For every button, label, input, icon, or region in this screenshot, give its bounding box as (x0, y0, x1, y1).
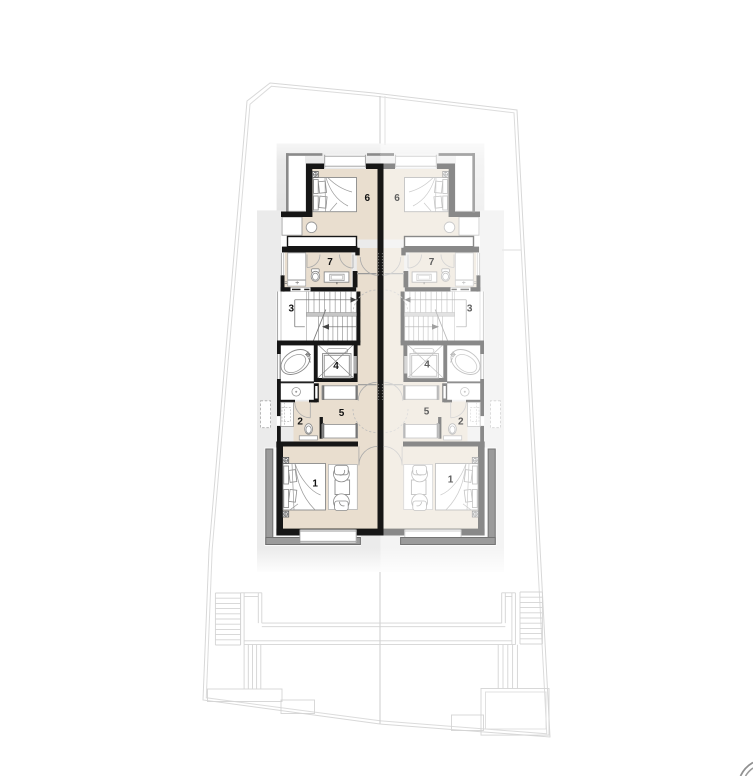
svg-text:6: 6 (394, 193, 400, 204)
svg-text:3: 3 (467, 304, 473, 315)
svg-text:7: 7 (429, 257, 435, 268)
svg-text:7: 7 (327, 257, 333, 268)
svg-text:6: 6 (365, 193, 371, 204)
svg-text:4: 4 (424, 360, 430, 371)
svg-text:5: 5 (424, 407, 430, 418)
svg-text:4: 4 (333, 361, 339, 372)
svg-text:5: 5 (339, 408, 345, 419)
svg-text:1: 1 (448, 475, 454, 486)
svg-text:2: 2 (297, 416, 303, 427)
svg-text:3: 3 (289, 304, 295, 315)
svg-text:2: 2 (458, 416, 464, 427)
svg-text:1: 1 (312, 478, 318, 489)
